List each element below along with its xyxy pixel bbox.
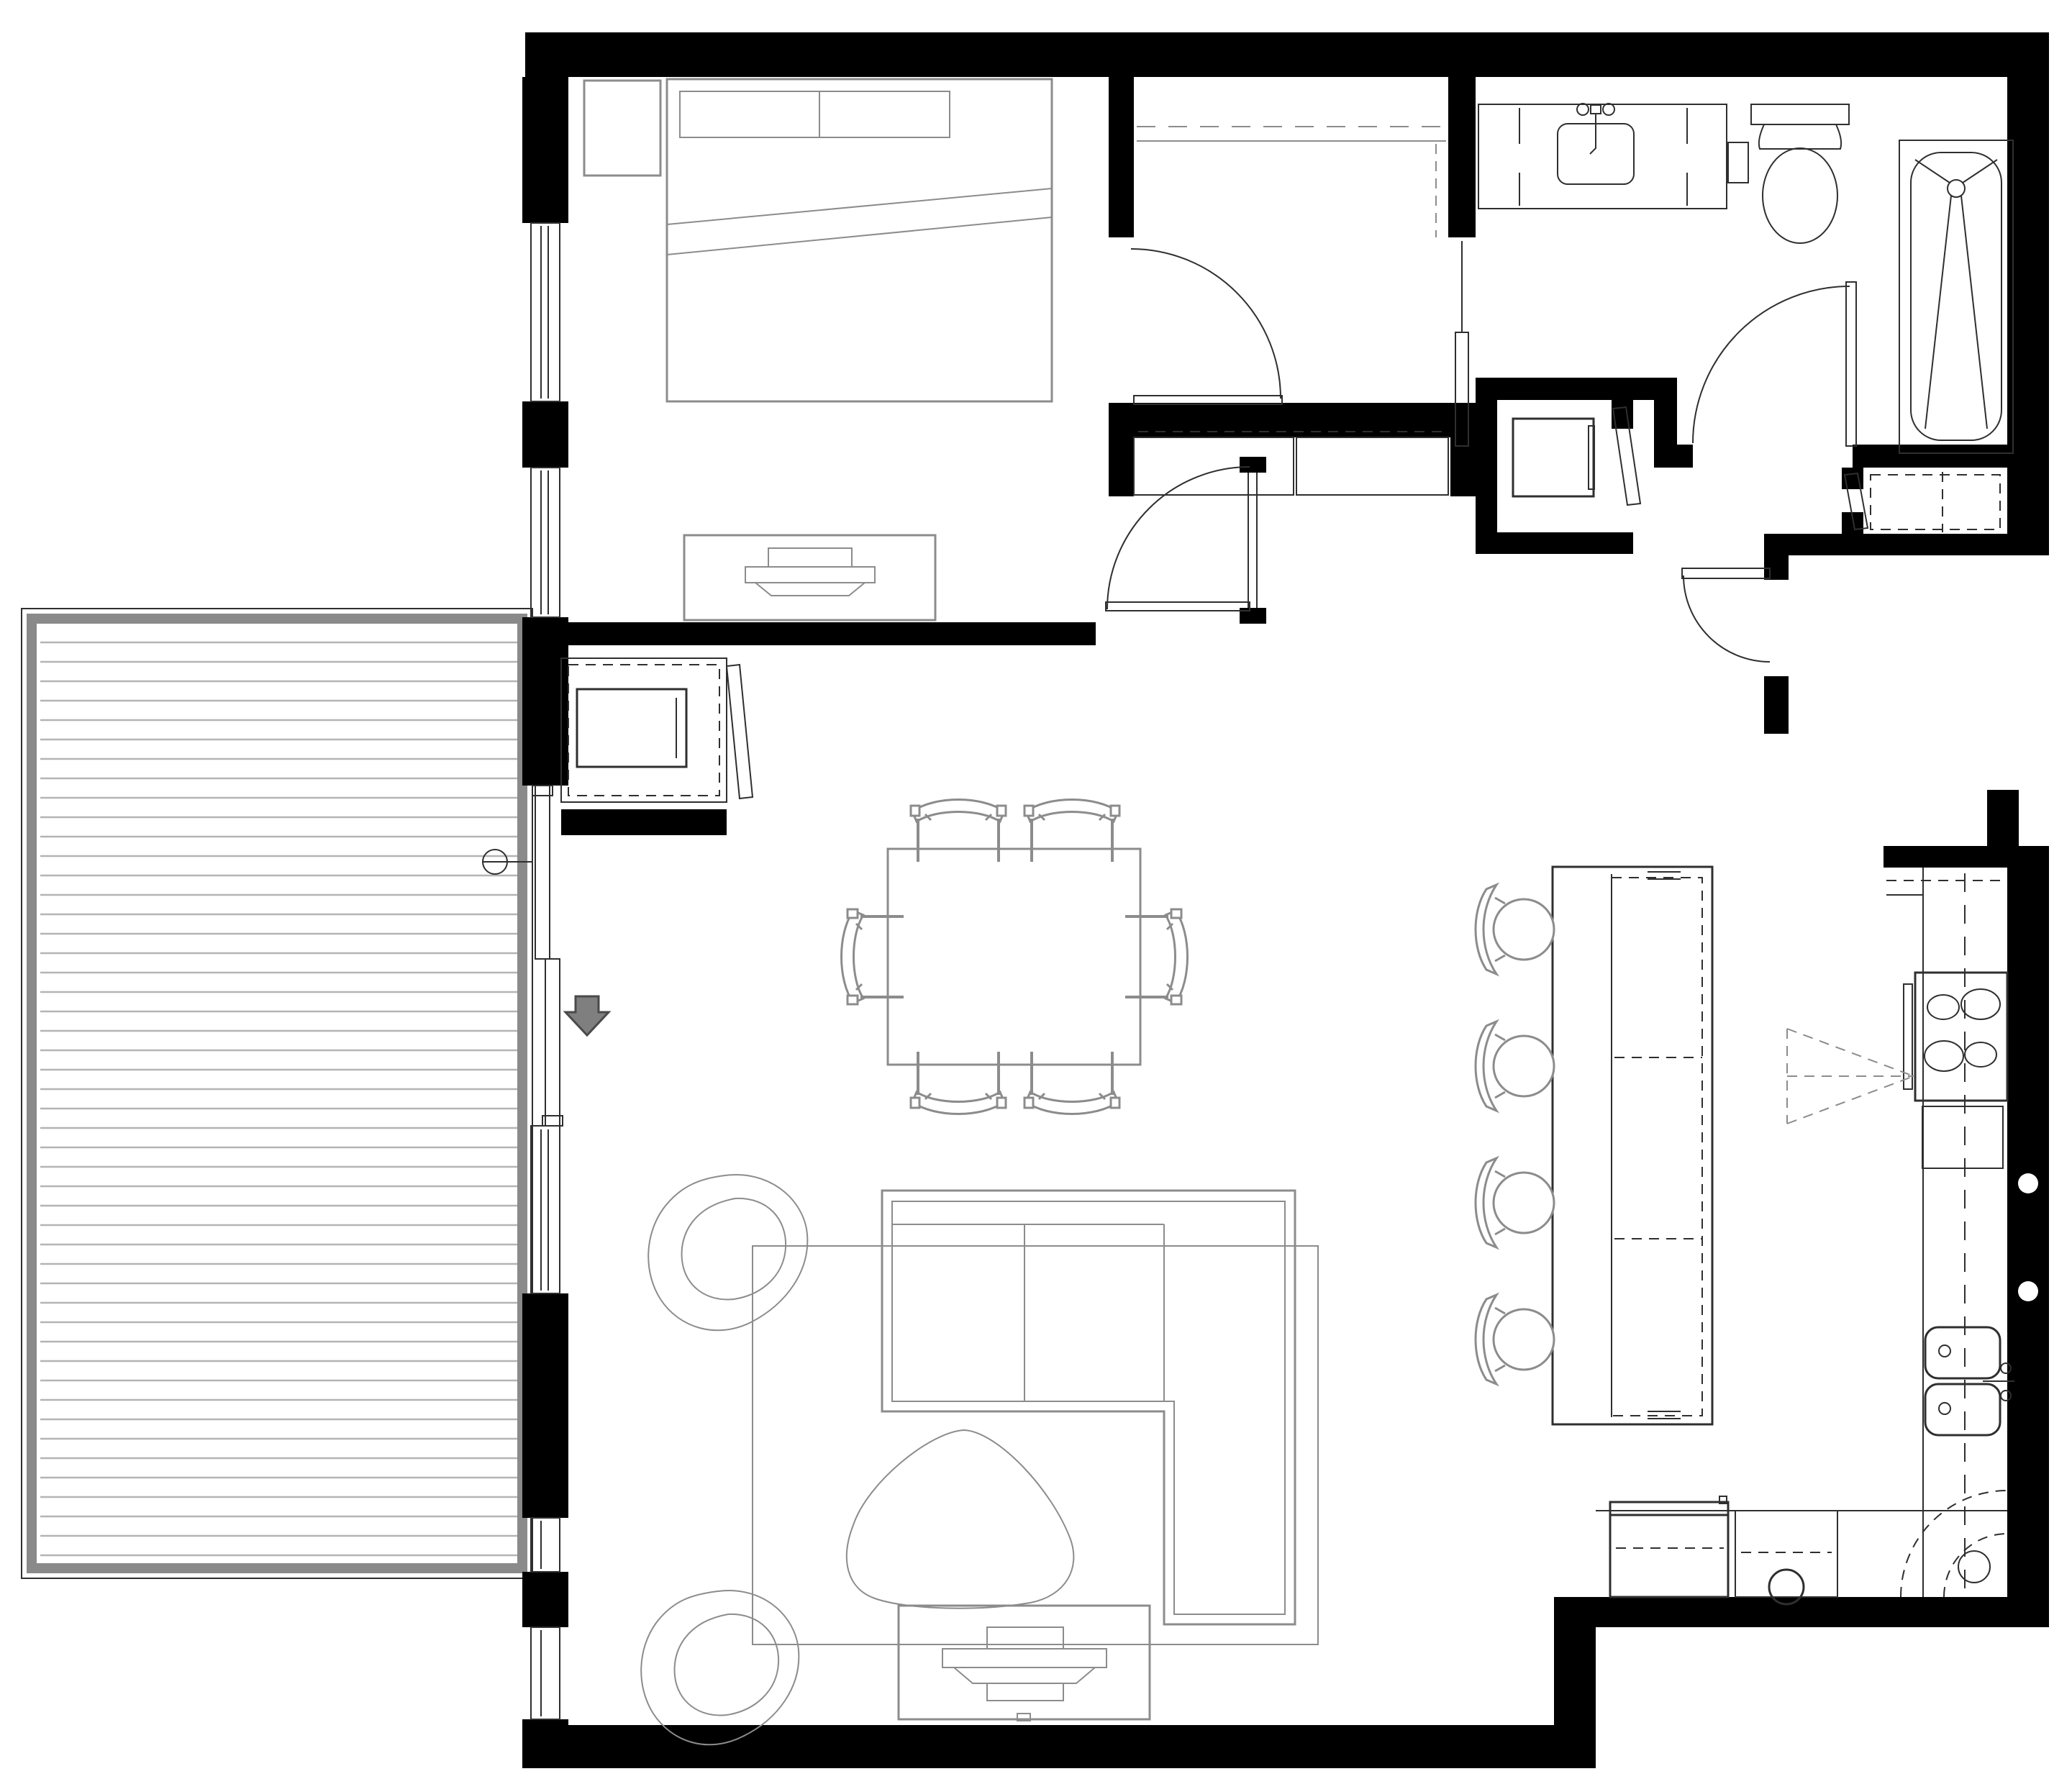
coffee-table	[847, 1430, 1073, 1609]
kitchen-sink-icon	[1925, 1327, 2014, 1435]
tv-icon	[942, 1627, 1107, 1701]
towel-bar	[1728, 142, 1748, 183]
island-counter	[1553, 867, 1712, 1424]
wall-top	[525, 32, 2049, 77]
bathtub-icon	[1899, 140, 2013, 453]
pillow	[680, 91, 819, 137]
bathroom	[1478, 104, 2013, 453]
wall-closet-west	[1109, 77, 1134, 237]
dining-table	[888, 849, 1140, 1065]
sink-bowl	[1925, 1384, 2000, 1435]
toilet-icon	[1751, 104, 1849, 243]
tv-icon	[745, 548, 875, 596]
balcony	[22, 609, 532, 1578]
dining-area	[842, 800, 1188, 1114]
door-leaf	[1682, 568, 1770, 578]
wall-dot-icon	[2018, 1173, 2038, 1193]
bathroom-door	[1693, 282, 1856, 446]
interior-walls	[568, 77, 2007, 645]
wall-closet-east	[1448, 77, 1476, 237]
wall-vestibule-top	[1764, 534, 2007, 555]
hall-built-in-cabinets	[1134, 432, 1448, 495]
toilet-bowl	[1763, 148, 1837, 243]
burner	[1925, 1041, 1963, 1071]
wall-laundry-south	[1476, 532, 1633, 554]
floor-plan-drawing	[0, 0, 2072, 1779]
living-room	[641, 1175, 1318, 1744]
dishwasher	[1735, 1511, 1837, 1604]
door-leaf	[1846, 282, 1856, 446]
dining-chair	[911, 1052, 1006, 1114]
window	[531, 1518, 560, 1572]
vanity-counter	[1478, 104, 1727, 209]
bar-stool	[1476, 885, 1554, 974]
wall-bath-jog	[1654, 378, 1677, 468]
door-swing-arc	[1693, 286, 1850, 443]
floor-plan-canvas	[0, 0, 2072, 1779]
vanity	[1478, 104, 1748, 209]
lounge-chair	[641, 1591, 799, 1744]
wall-laundry-west	[1476, 400, 1497, 554]
oven-door	[1922, 1106, 2003, 1168]
door-swing-arc	[1683, 575, 1770, 662]
bar-stool	[1476, 1158, 1554, 1247]
entry-door	[1682, 568, 1770, 662]
balcony-deck-boards	[40, 627, 522, 1560]
lounge-chair	[648, 1175, 807, 1330]
wall-kitchen-bottom	[1596, 1597, 2049, 1627]
bar-stool	[1476, 1022, 1554, 1111]
window	[531, 1627, 560, 1719]
balcony-sliding-door	[532, 786, 563, 1126]
bottom-counter-run	[1596, 1491, 2007, 1604]
closet-box	[561, 658, 727, 802]
wall-bedroom-south	[568, 622, 1096, 645]
window	[531, 223, 560, 401]
burner	[1965, 1042, 1996, 1067]
bedroom-reach-in-closet	[561, 658, 753, 835]
cabinet	[1296, 437, 1448, 495]
bed	[667, 79, 1052, 401]
nightstand	[584, 81, 660, 176]
door-swing-arc	[1131, 249, 1281, 399]
linen-closet	[1845, 472, 2000, 532]
walk-in-closet-door	[1131, 249, 1282, 404]
dining-chair	[842, 909, 904, 1004]
wall-bath-door-jamb	[1853, 445, 1880, 468]
tub-drain	[1948, 180, 1965, 197]
cooktop	[1904, 973, 2007, 1168]
washer-dryer	[1513, 419, 1594, 496]
wall-stub-vestibule	[1987, 790, 2019, 847]
tub-inner	[1911, 153, 2001, 440]
entry-direction-arrow-icon	[565, 996, 609, 1035]
pillow	[819, 91, 950, 137]
tub-outer	[1899, 140, 2013, 453]
blanket-fold-lines	[667, 188, 1052, 255]
closet-cabinet	[577, 689, 686, 767]
cabinet	[1134, 437, 1294, 495]
toilet-tank	[1751, 104, 1849, 124]
burner	[1927, 995, 1959, 1019]
sink-bowl	[1925, 1327, 2000, 1378]
dining-chair	[1024, 1052, 1119, 1114]
kitchen	[1476, 867, 2014, 1604]
range	[1915, 973, 2007, 1101]
island-cabinets-dashed	[1612, 878, 1702, 1416]
media-console-with-tv	[899, 1606, 1150, 1721]
corner-lazy-susan	[1901, 1491, 2007, 1597]
wall-dot-icon	[2018, 1281, 2038, 1301]
sectional-sofa	[882, 1191, 1295, 1624]
dining-chair	[1024, 800, 1119, 863]
bar-stool	[1476, 1295, 1554, 1384]
walk-in-closet	[1137, 127, 1446, 237]
wall-kitchen-top	[1884, 846, 2049, 868]
wall-jog	[1554, 1597, 1596, 1728]
slider-panel	[535, 786, 550, 959]
faucet-icon	[1577, 104, 1614, 154]
wall-bottom	[525, 1725, 1596, 1768]
window	[531, 1126, 560, 1293]
bedroom	[561, 79, 1052, 835]
media-console	[899, 1606, 1150, 1719]
dresser-with-tv	[684, 535, 935, 620]
window	[531, 468, 560, 617]
door-leaf	[1106, 602, 1250, 611]
kitchen-island	[1553, 867, 1712, 1424]
area-rug	[753, 1246, 1318, 1644]
wall-bath-south-west	[1476, 378, 1677, 400]
dining-chair	[911, 800, 1006, 863]
slider-panel	[545, 959, 560, 1126]
wall-right-lower	[2007, 868, 2049, 1627]
angled-closet-door	[727, 665, 753, 798]
linen-shelves-dashed	[1871, 475, 2000, 529]
wall-entry-jamb-bottom	[1764, 676, 1789, 734]
hood-dashed-symbol	[1787, 1029, 1914, 1124]
dining-chair	[1125, 909, 1188, 1004]
burner	[1961, 989, 2000, 1019]
